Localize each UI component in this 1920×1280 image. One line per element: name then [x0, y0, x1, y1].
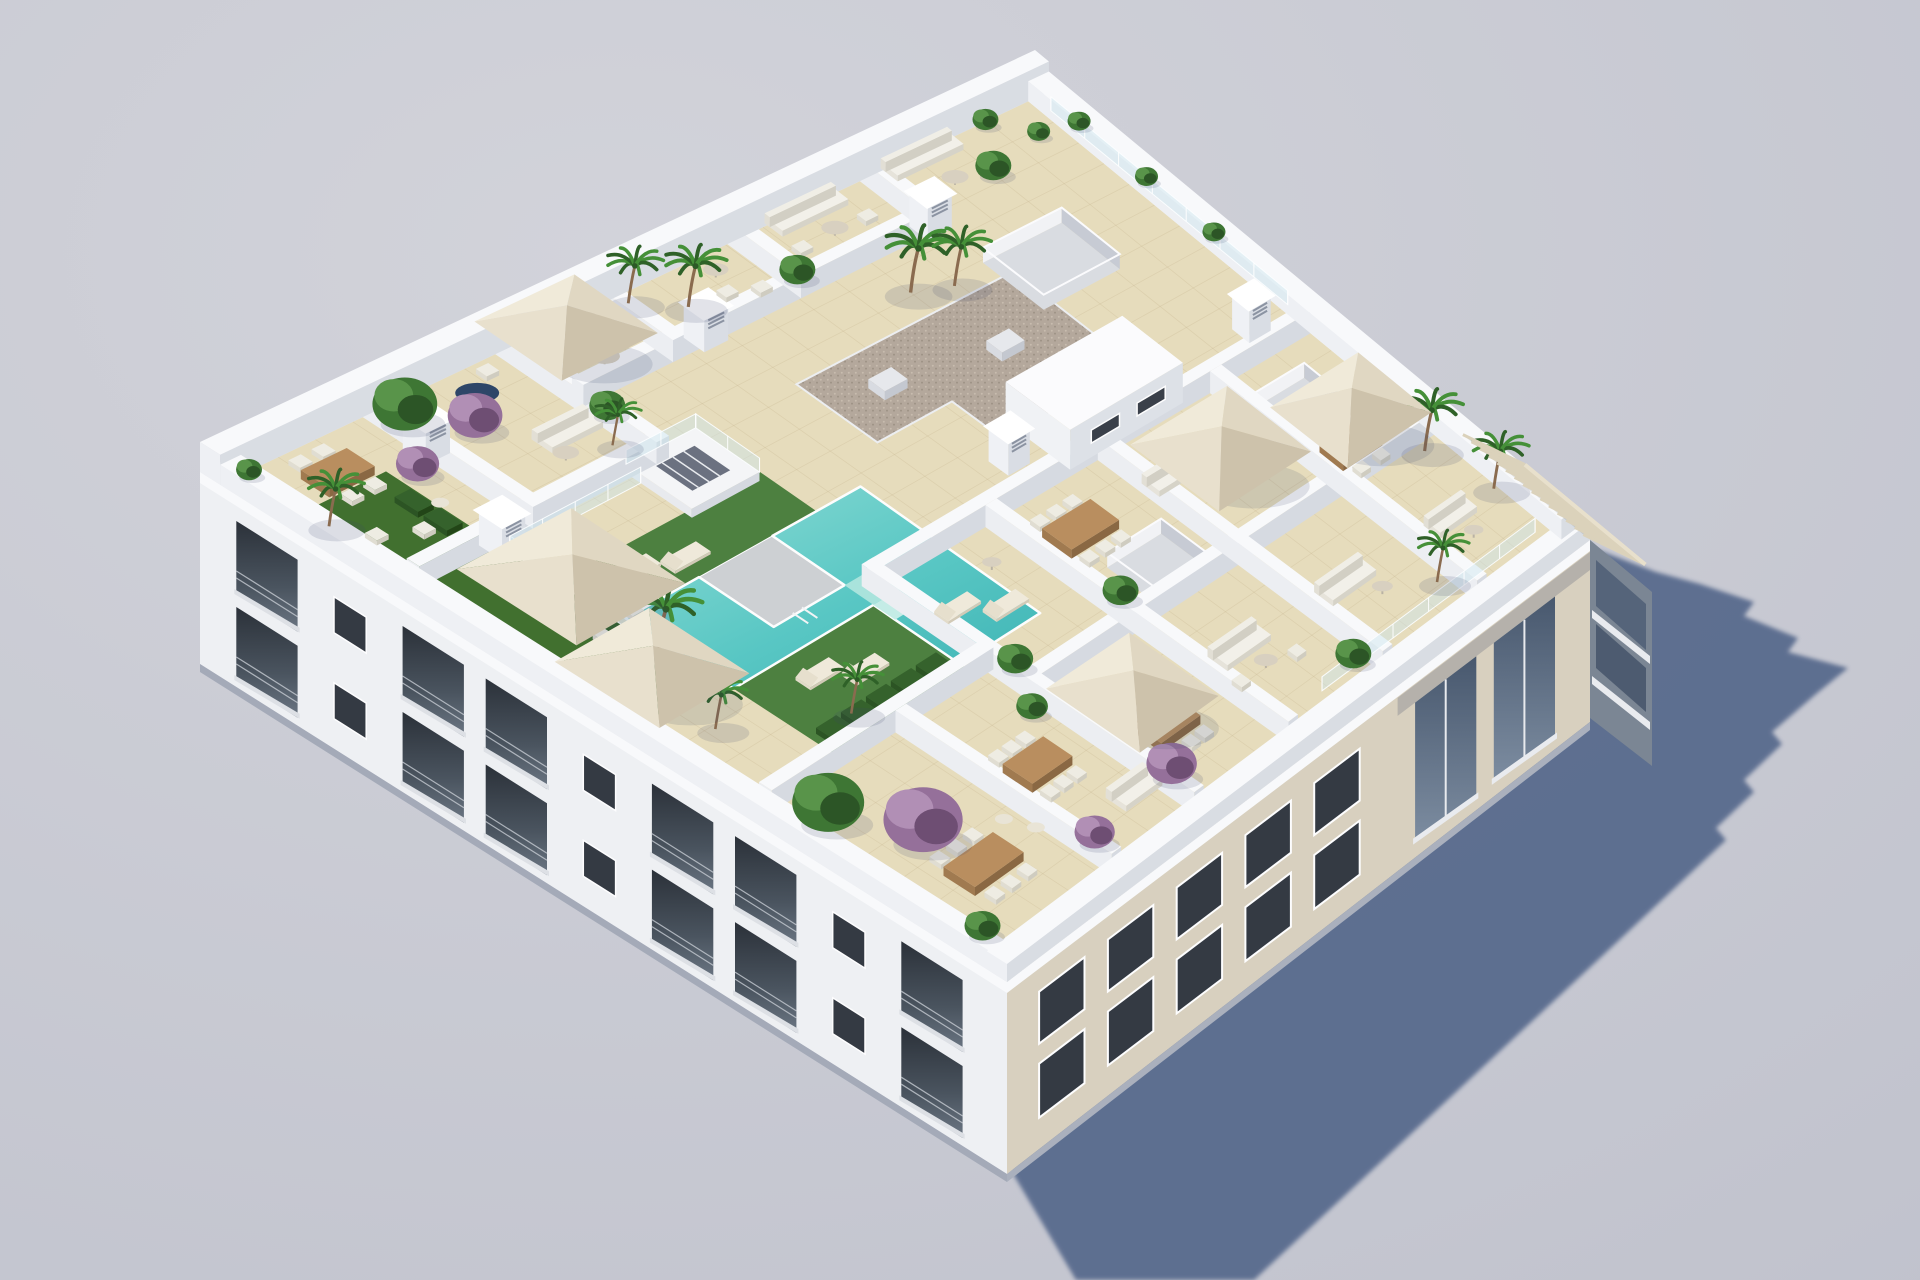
shrub-shade — [983, 116, 997, 128]
round-table — [1372, 581, 1393, 592]
pouf — [995, 814, 1013, 824]
shrub-shade — [1144, 173, 1157, 183]
shrub-shade — [989, 161, 1009, 177]
round-table — [553, 446, 580, 459]
palm-crown — [1441, 546, 1446, 551]
shrub-shade — [1349, 649, 1369, 665]
plant-shadow — [833, 708, 885, 728]
plant-shadow — [697, 723, 749, 743]
round-table — [1254, 654, 1278, 666]
plant-shadow — [1419, 576, 1471, 596]
shrub-shade — [1036, 128, 1049, 138]
plant-shadow — [597, 440, 644, 458]
shrub-shade — [1117, 585, 1137, 601]
scene-root — [0, 0, 1920, 1280]
shrub-shade — [820, 792, 860, 824]
palm-crown — [333, 486, 339, 492]
palm-crown — [616, 413, 621, 418]
palm-crown — [632, 263, 638, 269]
shrub-shade — [1211, 229, 1224, 239]
round-table — [821, 221, 848, 235]
plant-shadow — [308, 519, 365, 541]
rooftop-render — [0, 0, 1920, 1280]
shrub-shade — [246, 466, 260, 478]
plant-shadow — [1473, 482, 1530, 504]
round-table — [1464, 525, 1483, 535]
shrub-shade — [1090, 826, 1112, 844]
shrub-shade — [979, 921, 999, 937]
shrub-shade — [914, 809, 958, 845]
plant-shadow — [933, 278, 993, 301]
shrub-shade — [398, 395, 434, 424]
shrub-shade — [413, 458, 437, 477]
shrub-shade — [1011, 654, 1031, 670]
palm-crown — [958, 244, 964, 250]
palm-crown — [915, 245, 922, 252]
shrub-shade — [793, 265, 813, 281]
pouf — [431, 498, 449, 508]
palm-crown — [692, 263, 698, 269]
shrub-shade — [469, 408, 499, 433]
round-table — [982, 557, 1001, 567]
shrub-shade — [1077, 118, 1090, 128]
palm-crown — [855, 677, 860, 682]
pouf — [1027, 822, 1045, 832]
shrub-shade — [1166, 756, 1194, 779]
plant-shadow — [665, 299, 727, 323]
round-table — [941, 170, 968, 184]
shrub-shade — [1029, 702, 1046, 716]
